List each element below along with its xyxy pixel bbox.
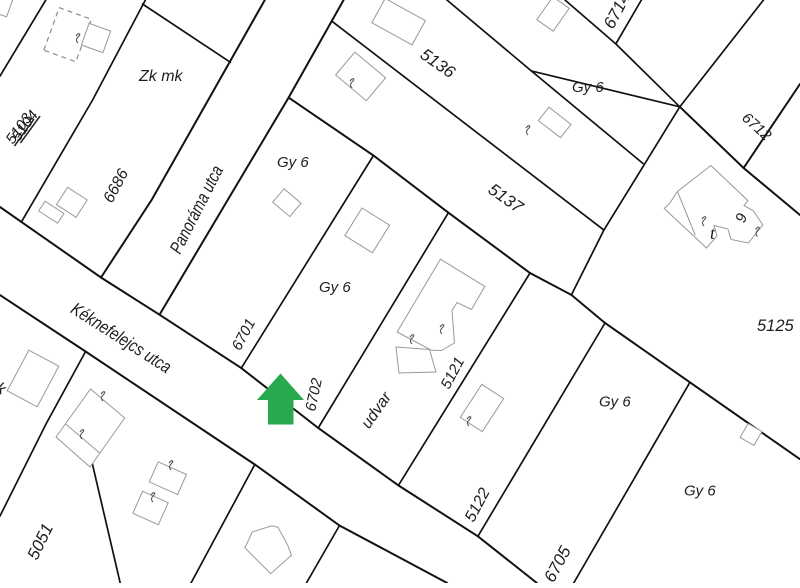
- svg-text:Gy 6: Gy 6: [572, 79, 604, 96]
- svg-text:Gy 6: Gy 6: [684, 483, 716, 500]
- svg-text:Gy 6: Gy 6: [319, 279, 351, 296]
- svg-text:Gy 6: Gy 6: [277, 154, 309, 171]
- svg-text:5125: 5125: [757, 317, 795, 335]
- svg-text:Zk mk: Zk mk: [138, 68, 184, 85]
- svg-text:Gy 6: Gy 6: [599, 394, 631, 411]
